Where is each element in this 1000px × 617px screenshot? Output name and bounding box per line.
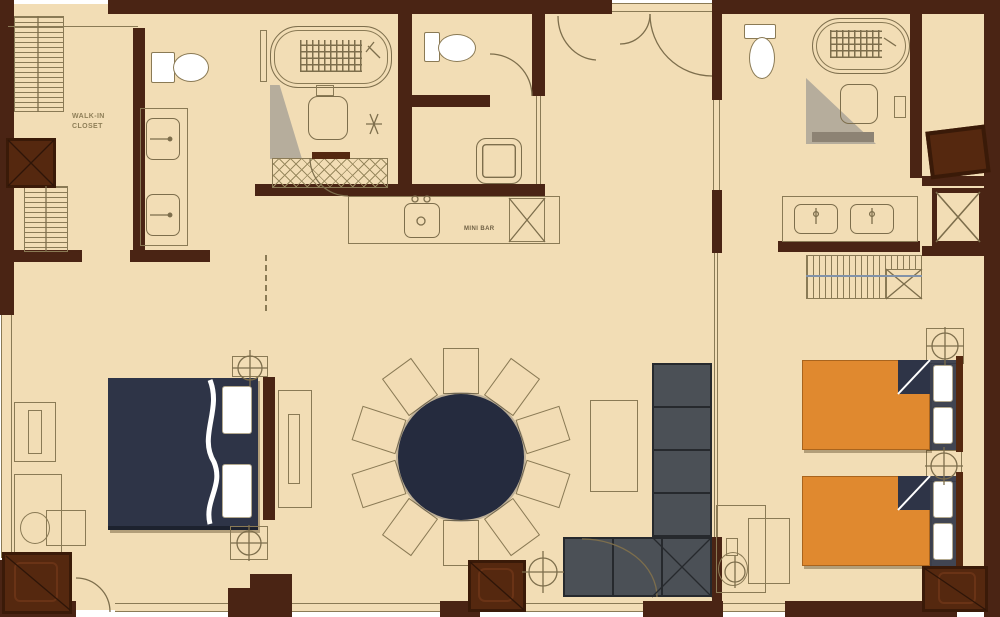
headboard-wall [263,377,275,520]
window [115,603,230,612]
wall-segment [408,95,490,107]
wall-thin [714,253,718,537]
wall-segment [108,0,612,14]
toilet-bowl [173,53,209,82]
bathtub-jets [300,40,362,72]
sofa-section [652,363,712,539]
shower-seat [840,84,878,124]
cabinet-inset [478,568,514,602]
pillow [933,407,953,444]
mini-bar-label: MINI BAR [464,226,508,232]
wall-segment [228,588,292,617]
closet-rack [14,16,64,112]
cabinet-inset [938,572,976,604]
bed-fold [898,476,930,510]
vanity-sink [794,204,838,234]
desk-return [748,518,790,584]
bathtub-jets [830,30,882,58]
wall-segment [643,601,723,617]
dining-table [398,394,524,520]
entry-threshold [612,3,712,12]
shower-bench [812,132,874,142]
bed-fold [898,360,930,394]
bath-mat [272,158,388,188]
wall-thin [536,96,541,188]
window [1,315,12,558]
shower-tray [476,138,522,184]
nightstand [232,356,268,377]
window [723,603,785,612]
towel-rail [260,30,267,82]
pillow [222,464,252,518]
vanity-cabinet [146,194,180,236]
side-chair [46,510,86,546]
wall-segment [532,14,545,96]
sofa-section [563,537,712,597]
desk-chair [718,552,748,586]
shower-bench [308,96,348,140]
pillow [933,481,953,518]
closet-cabinet [6,138,56,188]
walk-in-closet-label: WALK-IN CLOSET [72,112,118,132]
pillow [933,365,953,402]
pillow [933,523,953,560]
wall-segment [984,0,1000,617]
desk-item [28,410,42,454]
wall-thin [713,100,720,190]
closet-door-leaf [925,125,990,180]
window [292,603,440,612]
luggage-rack [886,269,922,299]
vanity-sink [850,204,894,234]
bath-door-leaf [312,152,350,159]
wall-segment [712,190,722,253]
toiletry-tray [316,85,334,96]
wall-segment [778,241,920,252]
nightstand [230,526,268,560]
wall-segment [712,14,722,100]
closet-rack [24,186,68,252]
coffee-table [590,400,638,492]
dining-chair [443,348,479,394]
shelf [894,96,906,118]
vanity-cabinet [146,118,180,160]
wall-segment [712,0,1000,14]
wall-segment [922,246,1000,256]
wall-segment [910,14,922,178]
toilet-bowl [749,37,775,79]
cabinet-inset [14,562,58,602]
toilet [151,52,175,83]
desk-lamp [726,538,738,556]
console-inset [288,414,300,484]
headboard [956,472,963,568]
duct-shaft [932,188,984,246]
toilet-bowl [438,34,476,62]
wall-segment [130,250,210,262]
wall-segment [250,574,292,590]
pocket-door [265,255,269,311]
pillow [222,386,252,434]
headboard [956,356,963,452]
kitchen-sink [404,203,440,238]
minibar-fridge [509,198,545,242]
floor-plan: WALK-IN CLOSET MINI BAR [0,0,1000,617]
